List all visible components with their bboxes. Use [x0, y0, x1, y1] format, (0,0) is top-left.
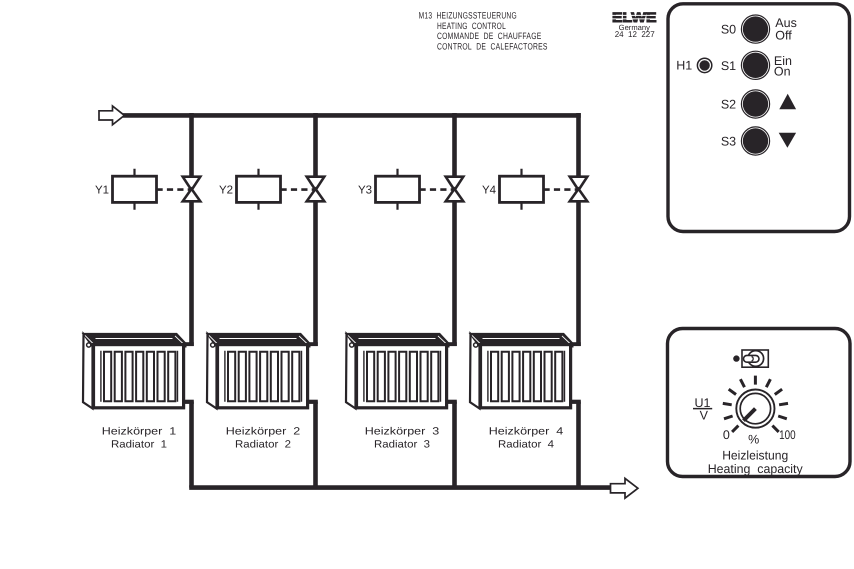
svg-text:S0: S0 — [721, 23, 736, 37]
svg-text:CONTROL DE CALEFACTORES: CONTROL DE CALEFACTORES — [437, 41, 548, 51]
svg-text:Heizkörper 2: Heizkörper 2 — [226, 425, 301, 437]
svg-text:Heizkörper 1: Heizkörper 1 — [102, 425, 177, 437]
svg-text:On: On — [774, 65, 791, 79]
svg-text:0: 0 — [723, 428, 730, 442]
svg-text:Radiator 2: Radiator 2 — [235, 439, 291, 451]
svg-text:Heizkörper 3: Heizkörper 3 — [365, 425, 440, 437]
svg-text:Radiator 4: Radiator 4 — [498, 439, 554, 451]
svg-text:Radiator 3: Radiator 3 — [374, 439, 430, 451]
svg-text:S1: S1 — [721, 59, 736, 73]
svg-text:100: 100 — [779, 428, 796, 442]
svg-text:V: V — [700, 408, 709, 422]
svg-text:24 12 227: 24 12 227 — [615, 29, 655, 39]
svg-text:Heating capacity: Heating capacity — [708, 462, 804, 476]
svg-text:COMMANDE DE CHAUFFAGE: COMMANDE DE CHAUFFAGE — [437, 31, 542, 41]
svg-text:HEATING CONTROL: HEATING CONTROL — [437, 21, 506, 31]
svg-text:Aus: Aus — [775, 16, 797, 30]
svg-text:Y1: Y1 — [95, 185, 109, 197]
svg-text:S3: S3 — [721, 135, 736, 149]
svg-text:Heizkörper 4: Heizkörper 4 — [489, 425, 564, 437]
svg-text:Y3: Y3 — [358, 185, 372, 197]
svg-text:Off: Off — [775, 29, 792, 43]
svg-text:%: % — [748, 433, 759, 447]
svg-text:M13 HEIZUNGSSTEUERUNG: M13 HEIZUNGSSTEUERUNG — [419, 11, 517, 21]
svg-text:S2: S2 — [721, 98, 736, 112]
svg-text:Heizleistung: Heizleistung — [722, 449, 788, 463]
svg-text:Y4: Y4 — [482, 185, 497, 197]
svg-text:Radiator 1: Radiator 1 — [111, 439, 167, 451]
svg-text:Y2: Y2 — [219, 185, 233, 197]
svg-text:H1: H1 — [676, 59, 692, 73]
